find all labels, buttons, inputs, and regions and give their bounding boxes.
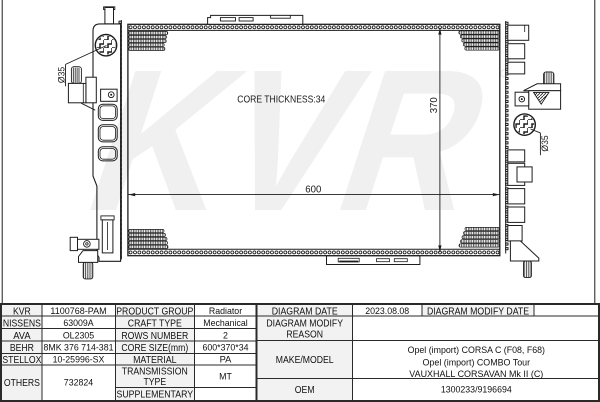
svg-text:KVR: KVR (13, 306, 31, 317)
svg-text:REASON: REASON (286, 329, 323, 340)
svg-text:DIAGRAM MODIFY: DIAGRAM MODIFY (266, 318, 343, 329)
svg-text:STELLOX: STELLOX (2, 355, 41, 366)
svg-text:1100768-PAM: 1100768-PAM (50, 306, 106, 316)
svg-text:ROWS NUMBER: ROWS NUMBER (121, 331, 188, 342)
svg-text:Ø35: Ø35 (540, 135, 550, 151)
svg-text:732824: 732824 (64, 378, 93, 388)
svg-text:8MK 376 714-381: 8MK 376 714-381 (44, 343, 114, 353)
svg-text:Opel (import) COMBO Tour: Opel (import) COMBO Tour (423, 357, 531, 367)
svg-text:DIAGRAM MODIFY DATE: DIAGRAM MODIFY DATE (427, 306, 529, 317)
svg-text:MATERIAL: MATERIAL (133, 355, 177, 366)
svg-text:TYPE: TYPE (144, 377, 167, 388)
svg-text:SUPPLEMENTARY: SUPPLEMENTARY (117, 390, 194, 401)
svg-text:KVR: KVR (64, 27, 517, 253)
svg-text:DIAGRAM DATE: DIAGRAM DATE (272, 306, 338, 317)
svg-text:OL2305: OL2305 (63, 330, 94, 340)
svg-text:10-25996-SX: 10-25996-SX (53, 355, 105, 365)
svg-text:BEHR: BEHR (10, 343, 34, 354)
svg-text:MAKE/MODEL: MAKE/MODEL (276, 355, 334, 366)
svg-text:PA: PA (220, 355, 232, 365)
svg-text:Opel (import) CORSA C (F08, F6: Opel (import) CORSA C (F08, F68) (408, 345, 545, 355)
svg-text:Radiator: Radiator (209, 306, 242, 316)
svg-text:VAUXHALL CORSAVAN Mk II (C): VAUXHALL CORSAVAN Mk II (C) (409, 369, 543, 379)
svg-text:AVA: AVA (13, 331, 30, 342)
svg-text:2: 2 (223, 330, 228, 340)
svg-text:Ø35: Ø35 (57, 67, 67, 83)
svg-text:CRAFT TYPE: CRAFT TYPE (128, 319, 182, 330)
svg-text:PRODUCT GROUP: PRODUCT GROUP (116, 306, 193, 317)
svg-text:CORE SIZE(mm): CORE SIZE(mm) (121, 343, 188, 354)
svg-text:OTHERS: OTHERS (4, 378, 40, 389)
svg-text:2023.08.08: 2023.08.08 (365, 306, 409, 316)
svg-text:Mechanical: Mechanical (203, 318, 248, 328)
svg-text:63009A: 63009A (63, 318, 94, 328)
svg-text:MT: MT (219, 372, 232, 382)
svg-text:OEM: OEM (295, 385, 315, 396)
svg-text:NISSENS: NISSENS (3, 319, 41, 330)
svg-text:600*370*34: 600*370*34 (203, 343, 249, 353)
svg-text:TRANSMISSION: TRANSMISSION (122, 367, 188, 378)
svg-text:1300233/9196694: 1300233/9196694 (441, 385, 512, 395)
